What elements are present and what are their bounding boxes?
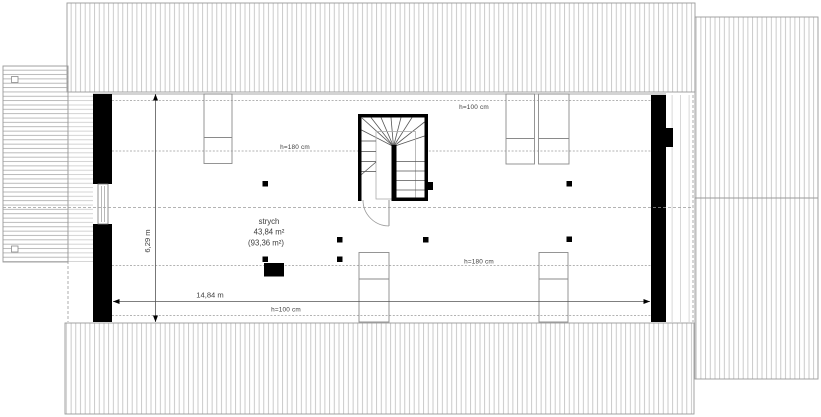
roof-post <box>428 182 433 190</box>
deck-post-top <box>12 77 19 83</box>
roof-post <box>263 181 269 187</box>
roof-post <box>423 237 429 243</box>
label-h180-bottom: h=180 cm <box>464 259 494 266</box>
balcony-deck <box>3 66 68 262</box>
wall-right <box>651 95 666 322</box>
dimension-depth: 6,29 m <box>143 94 158 322</box>
label-h100-bottom: h=100 cm <box>271 307 301 314</box>
stair-center-wall <box>392 145 397 201</box>
room-area: 43,84 m² <box>254 228 285 237</box>
dim-arrow-down <box>153 316 158 323</box>
deck-post-bottom <box>12 246 19 252</box>
floor-plan-canvas: 6,29 m 14,84 m h=100 cm h=180 cm h=180 c… <box>0 0 821 417</box>
wall-right-pilaster <box>666 128 673 147</box>
label-h180-top: h=180 cm <box>280 144 310 151</box>
room-label: strych 43,84 m² (93,36 m²) <box>248 217 285 248</box>
roof-plane-top <box>67 3 695 92</box>
wardrobe-bottom-left <box>359 253 389 323</box>
wardrobe-top-right-2 <box>539 94 570 164</box>
wardrobe-bottom-right <box>539 253 568 323</box>
roof-plane-right-wing <box>695 17 818 379</box>
roof-post <box>337 237 343 243</box>
eaves-strip-left <box>68 95 93 262</box>
dimension-width: 14,84 m <box>113 291 650 305</box>
wall-left-lower <box>93 224 112 322</box>
wardrobe-top-left <box>204 94 232 164</box>
door-swing-arc <box>363 200 389 226</box>
room-name: strych <box>259 217 280 226</box>
dim-arrow-left <box>113 299 120 304</box>
roof-post <box>263 257 269 263</box>
wall-left-upper <box>93 94 112 184</box>
dim-arrow-right <box>644 299 651 304</box>
dim-arrow-up <box>153 94 158 101</box>
depth-dimension-label: 6,29 m <box>143 229 152 252</box>
roof-plane-bottom <box>65 323 694 414</box>
roof-post <box>567 181 573 187</box>
floor-plan-page: 6,29 m 14,84 m h=100 cm h=180 cm h=180 c… <box>0 0 821 417</box>
wardrobe-top-right-1 <box>506 94 535 164</box>
room-area-total: (93,36 m²) <box>248 239 284 248</box>
staircase <box>358 114 433 226</box>
window-left-wall <box>98 184 108 224</box>
label-h100-top: h=100 cm <box>459 104 489 111</box>
roof-post <box>567 237 573 243</box>
width-dimension-label: 14,84 m <box>196 291 223 300</box>
roof-post <box>337 257 343 263</box>
stair-door <box>363 200 389 226</box>
chimney <box>264 263 284 277</box>
